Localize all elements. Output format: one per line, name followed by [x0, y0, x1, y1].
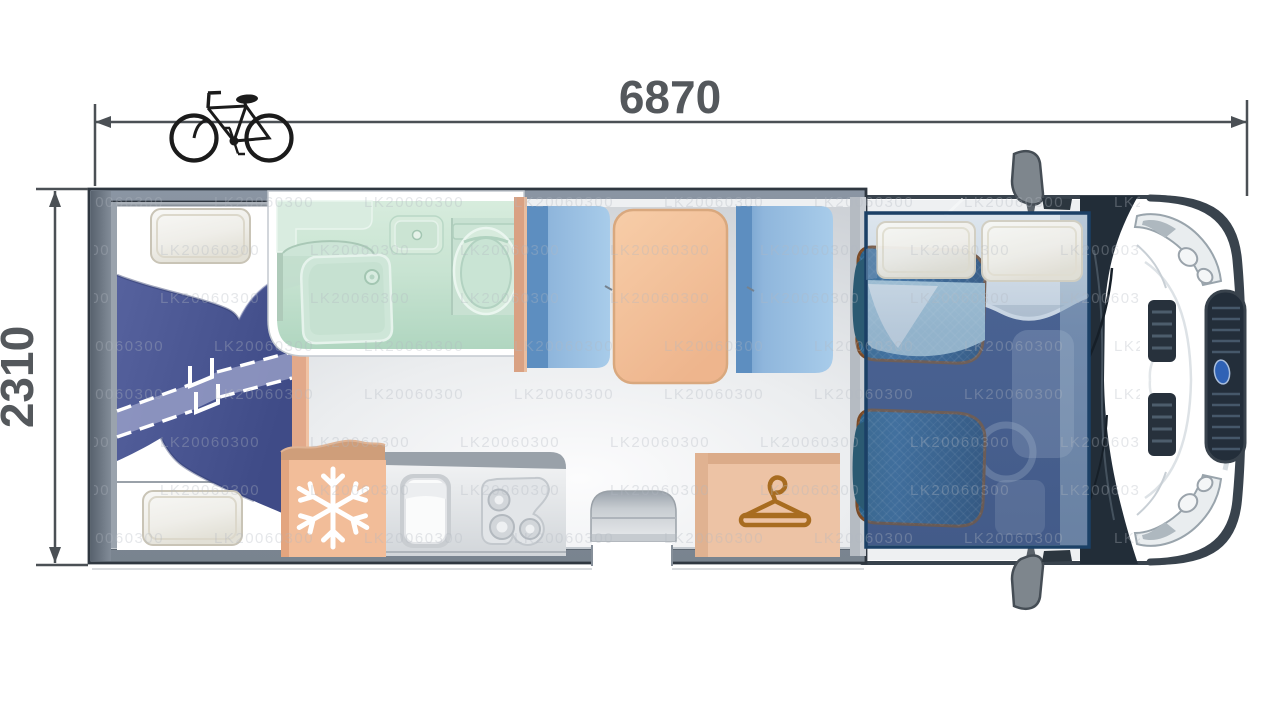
svg-text:LK20060300: LK20060300	[160, 482, 260, 499]
svg-text:LK20060300: LK20060300	[310, 482, 410, 499]
svg-text:LK20060300: LK20060300	[610, 482, 710, 499]
svg-text:LK20060300: LK20060300	[310, 290, 410, 307]
svg-text:2310: 2310	[0, 326, 43, 428]
svg-text:LK20060300: LK20060300	[364, 386, 464, 403]
svg-text:LK20060300: LK20060300	[610, 290, 710, 307]
svg-text:LK20060300: LK20060300	[964, 530, 1064, 547]
svg-text:LK20060300: LK20060300	[964, 386, 1064, 403]
svg-text:LK20060300: LK20060300	[160, 290, 260, 307]
svg-text:LK20060300: LK20060300	[964, 194, 1064, 211]
svg-text:LK20060300: LK20060300	[160, 242, 260, 259]
svg-text:LK20060300: LK20060300	[514, 530, 614, 547]
svg-text:LK20060300: LK20060300	[760, 482, 860, 499]
svg-text:LK20060300: LK20060300	[514, 386, 614, 403]
svg-text:LK20060300: LK20060300	[214, 386, 314, 403]
svg-text:LK20060300: LK20060300	[814, 194, 914, 211]
svg-text:LK20060300: LK20060300	[364, 338, 464, 355]
svg-text:LK20060300: LK20060300	[460, 434, 560, 451]
svg-text:LK20060300: LK20060300	[760, 242, 860, 259]
svg-text:LK20060300: LK20060300	[310, 434, 410, 451]
svg-text:LK20060300: LK20060300	[664, 386, 764, 403]
svg-text:LK20060300: LK20060300	[610, 434, 710, 451]
svg-text:LK20060300: LK20060300	[514, 194, 614, 211]
svg-text:LK20060300: LK20060300	[460, 482, 560, 499]
svg-text:LK20060300: LK20060300	[910, 434, 1010, 451]
svg-text:LK20060300: LK20060300	[664, 530, 764, 547]
svg-text:LK20060300: LK20060300	[364, 530, 464, 547]
svg-text:LK20060300: LK20060300	[814, 530, 914, 547]
svg-text:LK20060300: LK20060300	[214, 530, 314, 547]
svg-text:LK20060300: LK20060300	[664, 194, 764, 211]
svg-text:LK20060300: LK20060300	[460, 290, 560, 307]
svg-text:6870: 6870	[619, 71, 721, 123]
svg-text:LK20060300: LK20060300	[814, 338, 914, 355]
svg-text:LK20060300: LK20060300	[214, 194, 314, 211]
svg-text:LK20060300: LK20060300	[364, 194, 464, 211]
svg-text:LK20060300: LK20060300	[814, 386, 914, 403]
svg-text:LK20060300: LK20060300	[760, 434, 860, 451]
svg-text:LK20060300: LK20060300	[460, 242, 560, 259]
svg-text:LK20060300: LK20060300	[214, 338, 314, 355]
svg-text:LK20060300: LK20060300	[910, 482, 1010, 499]
svg-text:LK20060300: LK20060300	[910, 242, 1010, 259]
svg-text:LK20060300: LK20060300	[664, 338, 764, 355]
svg-text:LK20060300: LK20060300	[910, 290, 1010, 307]
svg-text:LK20060300: LK20060300	[964, 338, 1064, 355]
svg-text:LK20060300: LK20060300	[514, 338, 614, 355]
svg-text:LK20060300: LK20060300	[160, 434, 260, 451]
svg-text:LK20060300: LK20060300	[760, 290, 860, 307]
svg-text:LK20060300: LK20060300	[310, 242, 410, 259]
svg-text:LK20060300: LK20060300	[610, 242, 710, 259]
